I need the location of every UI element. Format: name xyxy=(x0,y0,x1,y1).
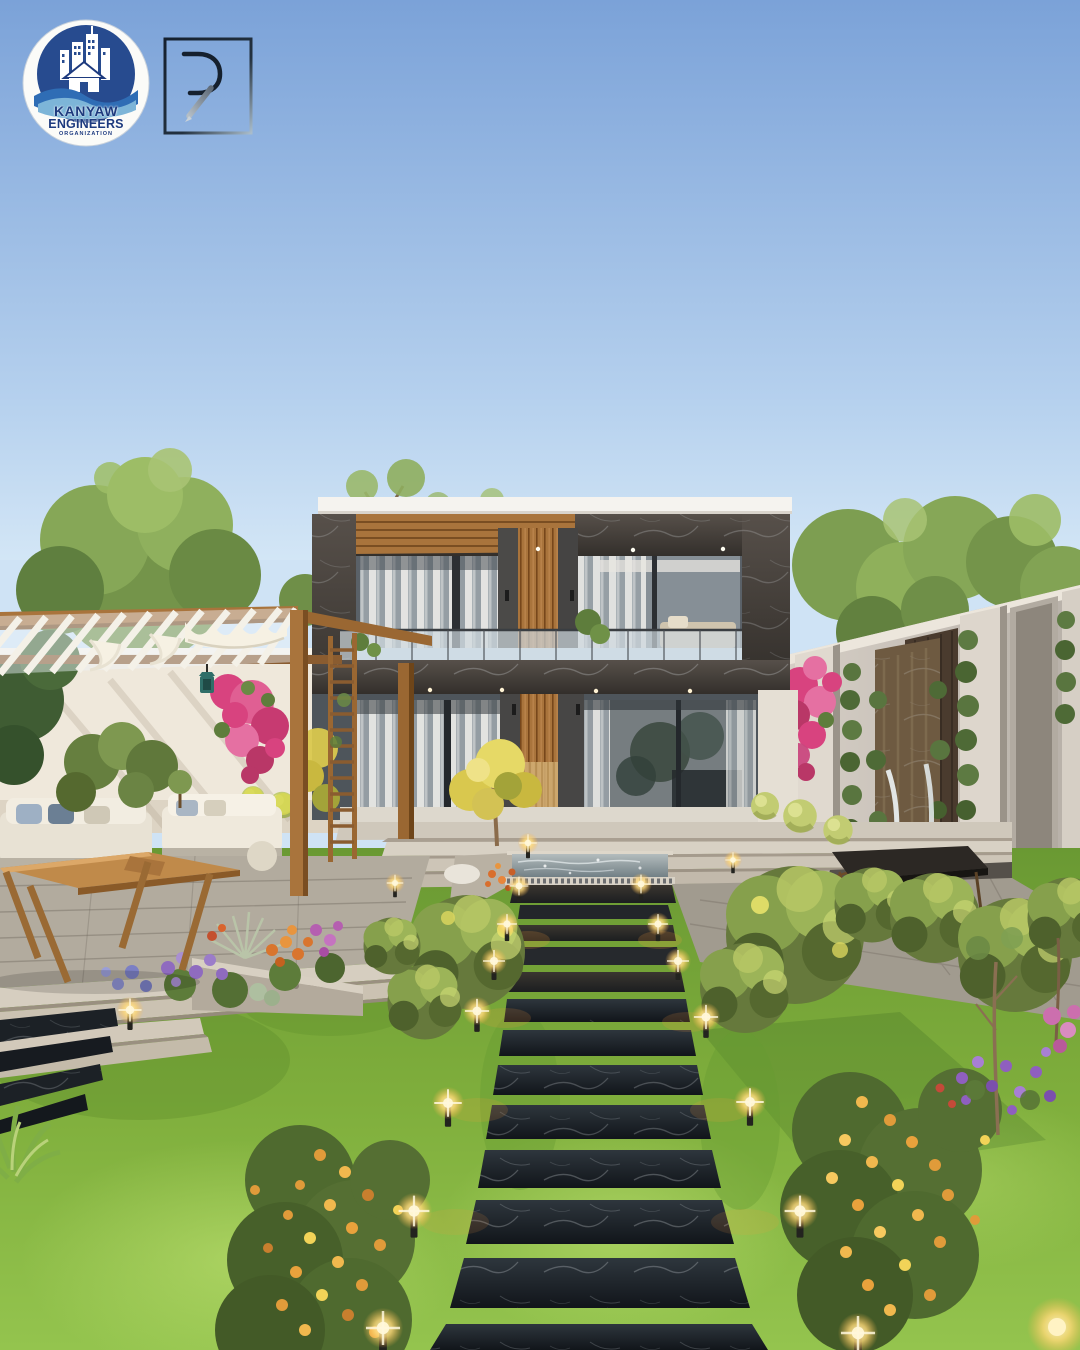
badge-caption: ORGANIZATION xyxy=(20,132,152,138)
r-letter-icon xyxy=(184,54,220,122)
badge-subtitle: ENGINEERS xyxy=(20,118,152,131)
architectural-render: KANYAW ENGINEERS ORGANIZATION xyxy=(0,0,1080,1350)
kanyaw-engineers-badge: KANYAW ENGINEERS ORGANIZATION xyxy=(20,16,152,150)
garden-villa-scene xyxy=(0,0,1080,1350)
garden-rock xyxy=(444,864,480,884)
ground-right-window xyxy=(584,700,756,816)
badge-title: KANYAW xyxy=(20,104,152,118)
villa-house xyxy=(312,497,798,860)
trellis-screen xyxy=(328,633,357,862)
pouf xyxy=(247,841,277,871)
r-monogram-logo xyxy=(162,36,254,136)
